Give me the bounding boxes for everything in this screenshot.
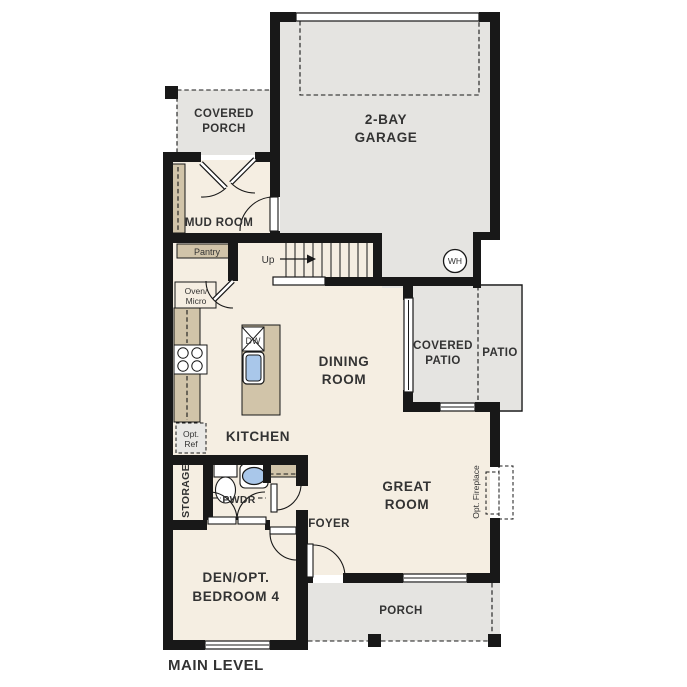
porch-post: [488, 634, 501, 647]
exterior-notch: [481, 240, 503, 286]
burner: [192, 361, 202, 371]
patio-label: PATIO: [482, 347, 517, 359]
garage-door: [296, 13, 479, 21]
covered-porch-label-line2: PORCH: [202, 123, 246, 135]
den-floor: [173, 528, 296, 642]
plan-title: MAIN LEVEL: [168, 657, 264, 674]
covered-porch-label-line1: COVERED: [194, 108, 254, 120]
sliding-patio-door: [404, 298, 413, 392]
burner: [178, 361, 188, 371]
great-room-label-line2: ROOM: [385, 497, 429, 512]
water-heater: WH: [444, 250, 467, 273]
great-room-window: [403, 574, 467, 582]
stairs-up-label: Up: [262, 255, 275, 266]
opt-ref-label-line2: Ref: [184, 439, 198, 449]
oven-micro-label-line2: Micro: [186, 296, 207, 306]
island-sink: [243, 352, 264, 384]
garage-label-line2: GARAGE: [355, 130, 418, 145]
covered-patio-label-line1: COVERED: [413, 340, 473, 352]
oven-micro-label-line1: Oven/: [185, 286, 208, 296]
storage-wall: [203, 463, 213, 520]
dining-room-label-line2: ROOM: [322, 372, 366, 387]
great-room-label-line1: GREAT: [382, 479, 431, 494]
den-window: [205, 641, 270, 649]
pantry-label: Pantry: [194, 247, 221, 257]
opt-fireplace-label: Opt. Fireplace: [471, 465, 481, 519]
floor-plan-page: WH 2-BAY GARAGE COVERED PORCH MUD ROOM D…: [0, 0, 687, 687]
cooktop: [174, 345, 207, 374]
covered-patio-label-line2: PATIO: [425, 355, 460, 367]
burner: [178, 348, 188, 358]
dining-room-label-line1: DINING: [319, 354, 370, 369]
floor-plan-svg: WH 2-BAY GARAGE COVERED PORCH MUD ROOM D…: [0, 0, 687, 687]
garage-label-line1: 2-BAY: [365, 112, 407, 127]
porch-label: PORCH: [379, 605, 423, 617]
water-heater-label: WH: [448, 256, 462, 266]
pantry-wall: [228, 243, 238, 281]
burner: [192, 348, 202, 358]
storage-label: STORAGE: [180, 464, 192, 518]
covered-patio-window: [440, 403, 475, 411]
porch-post: [165, 86, 178, 99]
foyer-label: FOYER: [308, 518, 350, 530]
powder-label: PWDR: [222, 494, 255, 506]
dishwasher-label: DW: [246, 336, 261, 346]
den-label-line1: DEN/OPT.: [202, 570, 269, 585]
opt-ref-label-line1: Opt.: [183, 429, 199, 439]
mud-room-label: MUD ROOM: [185, 217, 253, 229]
den-label-line2: BEDROOM 4: [192, 589, 279, 604]
stair-landing: [273, 277, 325, 285]
stair-wall: [373, 243, 382, 278]
kitchen-label: KITCHEN: [226, 429, 290, 444]
